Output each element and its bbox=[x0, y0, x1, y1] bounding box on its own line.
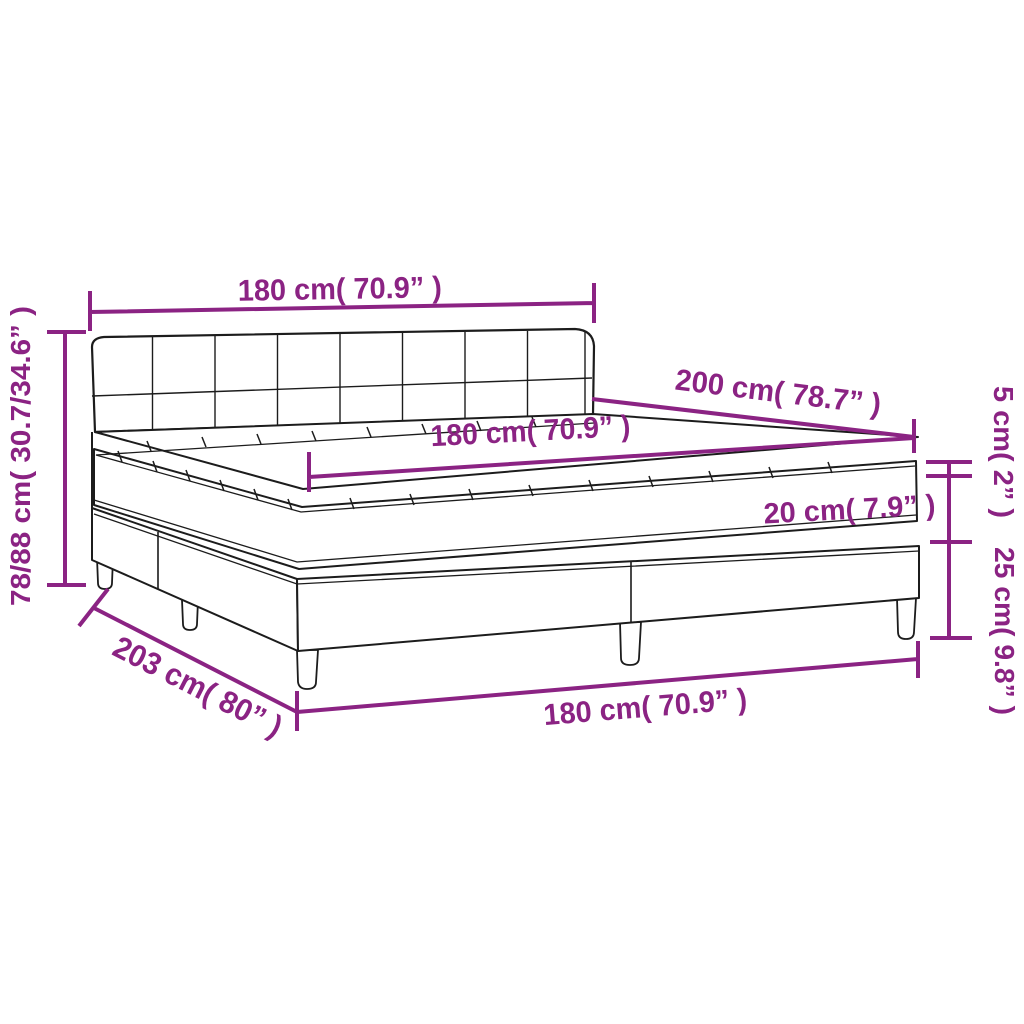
dimension-diagram-page: 180 cm( 70.9” ) 78/88 cm( 30.7/34.6” ) 2… bbox=[0, 0, 1024, 1024]
dim-label-total-height: 78/88 cm( 30.7/34.6” ) bbox=[5, 306, 36, 606]
bed-dimension-diagram: 180 cm( 70.9” ) 78/88 cm( 30.7/34.6” ) 2… bbox=[0, 0, 1024, 1024]
dim-label-topper-thickness: 5 cm( 2” ) bbox=[988, 386, 1019, 518]
dim-line-total-height bbox=[47, 332, 86, 585]
bed-leg bbox=[297, 650, 318, 689]
dim-label-headboard-width: 180 cm( 70.9” ) bbox=[238, 271, 443, 308]
dim-label-base-height: 25 cm( 9.8” ) bbox=[989, 547, 1020, 715]
dim-label-frame-length: 203 cm( 80” ) bbox=[107, 629, 288, 744]
bed-leg bbox=[897, 598, 916, 639]
dim-bracket-heights bbox=[926, 462, 972, 638]
bed-leg bbox=[620, 622, 641, 665]
